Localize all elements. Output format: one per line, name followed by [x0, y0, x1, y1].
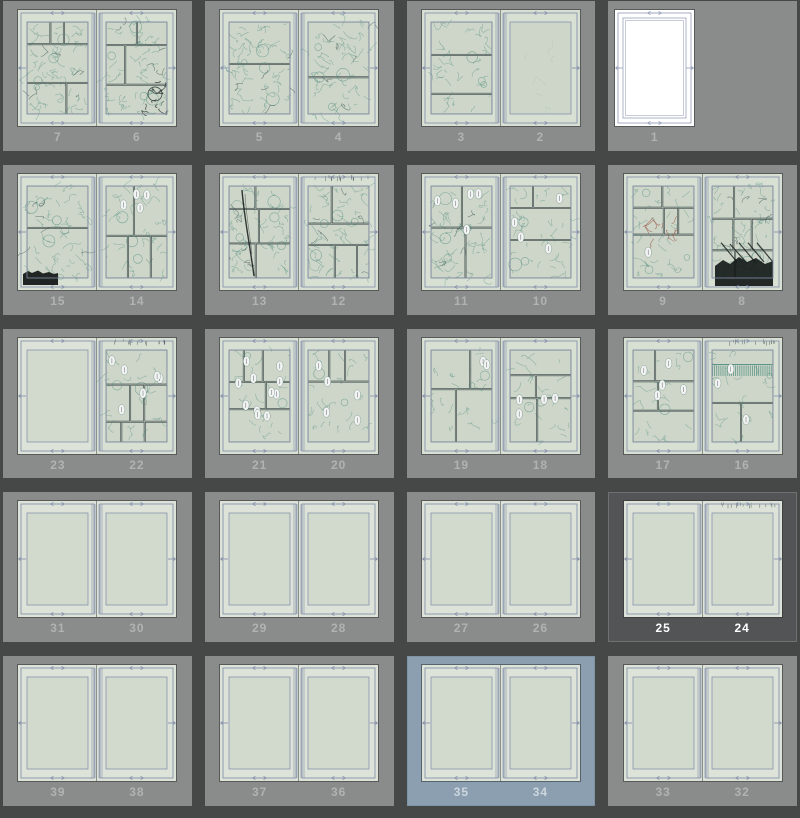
page-number: 6 — [97, 128, 176, 146]
page-number: 16 — [703, 456, 782, 474]
page-number: 29 — [220, 619, 299, 637]
spread-thumbnail[interactable]: 98 — [624, 174, 782, 310]
page-thumbnail[interactable] — [422, 665, 501, 781]
page-guides-and-sketch — [422, 338, 501, 454]
page-guides-and-sketch — [299, 10, 378, 126]
page-number-row: 3736 — [220, 783, 378, 801]
page-thumbnail[interactable] — [624, 174, 703, 290]
spread-pages — [615, 10, 694, 126]
page-thumbnail[interactable] — [97, 665, 176, 781]
page-guides-and-sketch — [18, 501, 97, 617]
spread-thumbnail[interactable]: 1312 — [220, 174, 378, 310]
page-number: 32 — [703, 783, 782, 801]
page-number: 2 — [501, 128, 580, 146]
spread-pages — [422, 174, 580, 290]
spread-cell[interactable]: 54 — [205, 1, 394, 151]
page-number: 33 — [624, 783, 703, 801]
page-thumbnail[interactable] — [97, 501, 176, 617]
spread-pages — [18, 338, 176, 454]
page-thumbnail[interactable] — [18, 174, 97, 290]
spread-cell[interactable]: 1312 — [205, 165, 394, 315]
page-number: 8 — [703, 292, 782, 310]
page-number: 21 — [220, 456, 299, 474]
page-guides-and-sketch — [299, 665, 378, 781]
page-guides-and-sketch — [624, 665, 703, 781]
page-guides-and-sketch — [501, 10, 580, 126]
page-guides-and-sketch — [501, 174, 580, 290]
spread-thumbnail[interactable]: 3534 — [422, 665, 580, 801]
page-number: 25 — [624, 619, 703, 637]
page-number: 9 — [624, 292, 703, 310]
spread-cell[interactable]: 76 — [3, 1, 192, 151]
spread-thumbnail[interactable]: 32 — [422, 10, 580, 146]
page-guides-and-sketch — [422, 174, 501, 290]
page-number-row: 2726 — [422, 619, 580, 637]
spread-pages — [18, 665, 176, 781]
page-number: 37 — [220, 783, 299, 801]
page-number: 35 — [422, 783, 501, 801]
page-thumbnail[interactable] — [220, 501, 299, 617]
page-thumbnail[interactable] — [703, 665, 782, 781]
page-number: 31 — [18, 619, 97, 637]
page-guides-and-sketch — [299, 338, 378, 454]
page-thumbnail[interactable] — [18, 665, 97, 781]
page-guides-and-sketch — [97, 174, 176, 290]
page-number: 14 — [97, 292, 176, 310]
spread-pages — [220, 338, 378, 454]
page-number-row: 3938 — [18, 783, 176, 801]
page-guides-and-sketch — [97, 665, 176, 781]
page-guides-and-sketch — [220, 338, 299, 454]
spread-thumbnail[interactable]: 2120 — [220, 338, 378, 474]
page-number-row: 2120 — [220, 456, 378, 474]
page-thumbnail[interactable] — [624, 338, 703, 454]
spread-pages — [220, 10, 378, 126]
page-thumbnail[interactable] — [220, 665, 299, 781]
page-number-row: 3534 — [422, 783, 580, 801]
page-guides-and-sketch — [501, 665, 580, 781]
spread-cell[interactable]: 32 — [407, 1, 596, 151]
page-thumbnail[interactable] — [220, 10, 299, 126]
page-guides-and-sketch — [18, 338, 97, 454]
page-thumbnail[interactable] — [18, 501, 97, 617]
page-guides-and-sketch — [624, 338, 703, 454]
spread-thumbnail[interactable]: 1918 — [422, 338, 580, 474]
page-number: 39 — [18, 783, 97, 801]
spread-cell[interactable]: 3736 — [205, 656, 394, 806]
page-number: 24 — [703, 619, 782, 637]
page-thumbnail[interactable] — [501, 665, 580, 781]
page-guides-and-sketch — [703, 665, 782, 781]
page-thumbnail[interactable] — [18, 10, 97, 126]
spread-pages — [624, 501, 782, 617]
page-number: 10 — [501, 292, 580, 310]
page-number: 19 — [422, 456, 501, 474]
page-guides-and-sketch — [501, 501, 580, 617]
spread-thumbnail[interactable]: 2322 — [18, 338, 176, 474]
page-thumbnail[interactable] — [299, 501, 378, 617]
spread-cell[interactable]: 1514 — [3, 165, 192, 315]
spread-thumbnail[interactable]: 2928 — [220, 501, 378, 637]
page-thumbnail[interactable] — [299, 10, 378, 126]
page-thumbnail[interactable] — [624, 501, 703, 617]
page-guides-and-sketch — [97, 501, 176, 617]
page-thumbnail[interactable] — [501, 174, 580, 290]
spread-pages — [624, 174, 782, 290]
page-guides-and-sketch — [501, 338, 580, 454]
spread-cell[interactable]: 2524 — [608, 492, 797, 642]
spread-pages — [422, 338, 580, 454]
spread-pages — [220, 665, 378, 781]
spread-cell[interactable]: 3938 — [3, 656, 192, 806]
spread-cell[interactable]: 3534 — [407, 656, 596, 806]
page-number: 28 — [299, 619, 378, 637]
spread-thumbnail[interactable]: 1110 — [422, 174, 580, 310]
spread-cell[interactable]: 3130 — [3, 492, 192, 642]
page-guides-and-sketch — [299, 501, 378, 617]
page-thumbnail[interactable] — [624, 665, 703, 781]
page-guides-and-sketch — [703, 174, 782, 290]
spread-thumbnail[interactable]: 3332 — [624, 665, 782, 801]
page-thumbnail[interactable] — [18, 338, 97, 454]
page-number: 36 — [299, 783, 378, 801]
spread-cell[interactable]: 98 — [608, 165, 797, 315]
spread-pages — [422, 665, 580, 781]
page-number: 12 — [299, 292, 378, 310]
page-number: 1 — [615, 128, 694, 146]
spread-pages — [624, 338, 782, 454]
page-guides-and-sketch — [220, 501, 299, 617]
page-number: 4 — [299, 128, 378, 146]
spread-pages — [624, 665, 782, 781]
spread-thumbnail[interactable]: 2726 — [422, 501, 580, 637]
page-thumbnail[interactable] — [422, 501, 501, 617]
page-thumbnail[interactable] — [615, 10, 694, 126]
spread-thumbnail[interactable]: 1514 — [18, 174, 176, 310]
page-guides-and-sketch — [220, 174, 299, 290]
page-guides-and-sketch — [624, 174, 703, 290]
spread-cell[interactable]: 3332 — [608, 656, 797, 806]
spread-thumbnail[interactable]: 3736 — [220, 665, 378, 801]
page-thumbnail[interactable] — [299, 665, 378, 781]
page-number-row: 2524 — [624, 619, 782, 637]
page-thumbnail[interactable] — [422, 174, 501, 290]
spread-thumbnail[interactable]: 3130 — [18, 501, 176, 637]
page-number: 7 — [18, 128, 97, 146]
page-thumbnail[interactable] — [299, 338, 378, 454]
spread-cell[interactable]: 2726 — [407, 492, 596, 642]
page-thumbnail[interactable] — [501, 501, 580, 617]
page-number: 30 — [97, 619, 176, 637]
page-thumbnail[interactable] — [97, 10, 176, 126]
page-thumbnail[interactable] — [703, 338, 782, 454]
page-number-row: 1918 — [422, 456, 580, 474]
page-guides-and-sketch — [703, 501, 782, 617]
page-number: 27 — [422, 619, 501, 637]
spread-thumbnail[interactable]: 1 — [615, 10, 694, 146]
spread-thumbnail[interactable]: 1716 — [624, 338, 782, 474]
spread-pages — [18, 501, 176, 617]
page-guides-and-sketch — [615, 10, 694, 126]
page-thumbnail[interactable] — [501, 338, 580, 454]
page-number-row: 3332 — [624, 783, 782, 801]
page-number: 11 — [422, 292, 501, 310]
page-guides-and-sketch — [220, 665, 299, 781]
page-thumbnail[interactable] — [501, 10, 580, 126]
spread-cell[interactable]: 1110 — [407, 165, 596, 315]
spread-pages — [220, 174, 378, 290]
page-number: 5 — [220, 128, 299, 146]
spread-cell[interactable]: 1 — [608, 1, 797, 151]
spread-pages — [220, 501, 378, 617]
page-number: 38 — [97, 783, 176, 801]
page-thumbnail[interactable] — [97, 338, 176, 454]
spread-thumbnail[interactable]: 3938 — [18, 665, 176, 801]
page-number-row: 98 — [624, 292, 782, 310]
page-thumbnail[interactable] — [703, 174, 782, 290]
page-number: 22 — [97, 456, 176, 474]
page-thumbnail[interactable] — [422, 10, 501, 126]
page-number-row: 1312 — [220, 292, 378, 310]
page-number-row: 76 — [18, 128, 176, 146]
spread-cell[interactable]: 2322 — [3, 329, 192, 479]
page-guides-and-sketch — [703, 338, 782, 454]
page-guides-and-sketch — [299, 174, 378, 290]
spread-thumbnail[interactable]: 76 — [18, 10, 176, 146]
page-number-row: 2928 — [220, 619, 378, 637]
page-guides-and-sketch — [624, 501, 703, 617]
page-guides-and-sketch — [220, 10, 299, 126]
page-guides-and-sketch — [97, 338, 176, 454]
spread-thumbnail[interactable]: 54 — [220, 10, 378, 146]
page-number: 3 — [422, 128, 501, 146]
page-number-row: 1514 — [18, 292, 176, 310]
page-number: 15 — [18, 292, 97, 310]
page-number: 34 — [501, 783, 580, 801]
page-thumbnail[interactable] — [97, 174, 176, 290]
page-number-row: 1 — [615, 128, 694, 146]
spread-pages — [18, 174, 176, 290]
page-number-row: 54 — [220, 128, 378, 146]
page-guides-and-sketch — [18, 10, 97, 126]
spread-cell[interactable]: 1716 — [608, 329, 797, 479]
page-number-row: 3130 — [18, 619, 176, 637]
spread-cell[interactable]: 2928 — [205, 492, 394, 642]
spread-cell[interactable]: 2120 — [205, 329, 394, 479]
spread-pages — [422, 501, 580, 617]
page-number-row: 1716 — [624, 456, 782, 474]
page-number: 26 — [501, 619, 580, 637]
page-guides-and-sketch — [422, 501, 501, 617]
page-thumbnail[interactable] — [220, 338, 299, 454]
page-number-row: 1110 — [422, 292, 580, 310]
page-guides-and-sketch — [18, 174, 97, 290]
page-number: 18 — [501, 456, 580, 474]
page-thumbnail[interactable] — [422, 338, 501, 454]
page-guides-and-sketch — [97, 10, 176, 126]
spread-pages — [422, 10, 580, 126]
page-guides-and-sketch — [422, 10, 501, 126]
page-thumbnail[interactable] — [299, 174, 378, 290]
page-number-row: 2322 — [18, 456, 176, 474]
page-number-row: 32 — [422, 128, 580, 146]
page-guides-and-sketch — [422, 665, 501, 781]
page-thumbnail[interactable] — [703, 501, 782, 617]
page-thumbnail[interactable] — [220, 174, 299, 290]
page-number: 17 — [624, 456, 703, 474]
spread-pages — [18, 10, 176, 126]
page-guides-and-sketch — [18, 665, 97, 781]
pages-grid: 7654321151413121110982322212019181716313… — [0, 0, 800, 818]
page-number: 20 — [299, 456, 378, 474]
spread-cell[interactable]: 1918 — [407, 329, 596, 479]
spread-thumbnail[interactable]: 2524 — [624, 501, 782, 637]
page-number: 13 — [220, 292, 299, 310]
page-number: 23 — [18, 456, 97, 474]
